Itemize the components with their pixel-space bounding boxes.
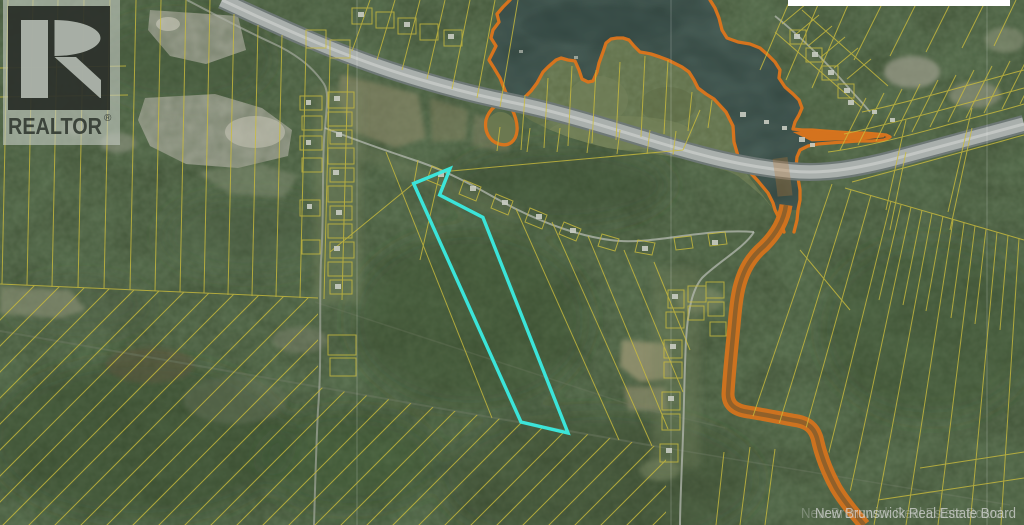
- svg-text:New Brunswick Real Estate Boar: New Brunswick Real Estate Board: [801, 506, 1002, 522]
- svg-text:REALTOR: REALTOR: [8, 113, 102, 139]
- svg-text:®: ®: [104, 113, 112, 124]
